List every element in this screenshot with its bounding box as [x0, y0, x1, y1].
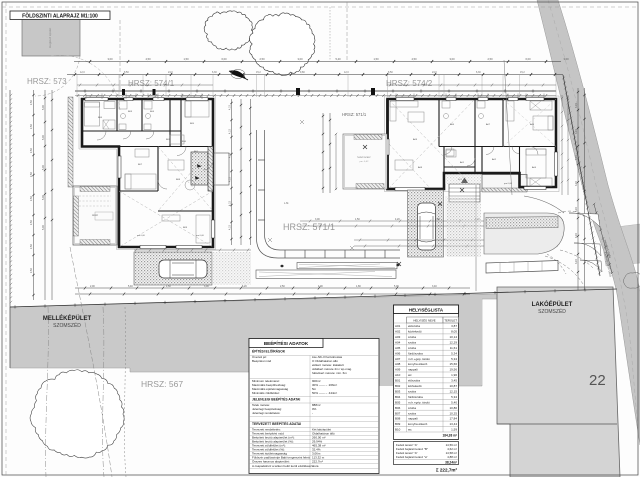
svg-text:A csapadékvíz a telken belül k: A csapadékvíz a telken belül kerül elszi…: [252, 464, 319, 468]
svg-text:szoba: szoba: [408, 335, 416, 339]
svg-text:A04: A04: [395, 340, 401, 344]
svg-text:6,30: 6,30: [212, 71, 217, 74]
svg-text:HELYISÉGLISTA: HELYISÉGLISTA: [409, 307, 444, 312]
svg-text:m.h.+gép. tároló: m.h.+gép. tároló: [408, 357, 430, 361]
svg-text:A08: A08: [395, 362, 401, 366]
svg-text:11,61: 11,61: [450, 346, 458, 350]
svg-text:Jelenlegi rendeltetés:: Jelenlegi rendeltetés:: [252, 411, 281, 415]
svg-text:konyha étkező: konyha étkező: [408, 422, 428, 426]
svg-text:5,00: 5,00: [394, 285, 399, 288]
svg-text:SZOMSZÉD: SZOMSZÉD: [538, 308, 566, 315]
svg-text:5,34: 5,34: [451, 351, 457, 355]
svg-text:3,00: 3,00: [315, 218, 320, 221]
svg-text:közlekedő: közlekedő: [408, 384, 422, 388]
svg-text:4,10: 4,10: [229, 153, 232, 158]
svg-text:3,20: 3,20: [575, 103, 578, 108]
svg-text:15,2: 15,2: [256, 71, 261, 74]
svg-text:3,87: 3,87: [451, 324, 457, 328]
svg-text:5,40: 5,40: [128, 285, 133, 288]
svg-text:TERVEZETT BEÉPÍTÉS ADATAI: TERVEZETT BEÉPÍTÉS ADATAI: [252, 421, 301, 426]
svg-text:6,20: 6,20: [242, 285, 247, 288]
svg-text:B07: B07: [395, 411, 401, 415]
svg-text:A01: A01: [395, 324, 401, 328]
svg-text:Fedett bejárati terasz "a": Fedett bejárati terasz "a": [396, 455, 428, 459]
svg-text:fedett terasz: fedett terasz: [357, 156, 371, 159]
svg-text:pm -0,02: pm -0,02: [360, 161, 369, 163]
svg-text:B01: B01: [395, 379, 401, 383]
svg-text:1,50: 1,50: [166, 285, 171, 288]
svg-text:17,84: 17,84: [449, 417, 457, 421]
svg-text:szoba: szoba: [408, 340, 416, 344]
svg-text:4,10: 4,10: [229, 177, 232, 182]
svg-text:MELLÉKÉPÜLET: MELLÉKÉPÜLET: [43, 314, 92, 322]
svg-text:m.h.+gép. tároló: m.h.+gép. tároló: [408, 400, 430, 404]
svg-text:3,20: 3,20: [575, 259, 578, 264]
svg-text:4,10: 4,10: [229, 225, 232, 230]
svg-text:B10: B10: [395, 428, 401, 432]
svg-text:4,00: 4,00: [318, 285, 323, 288]
svg-text:B09: B09: [395, 422, 401, 426]
svg-text:A03: A03: [395, 335, 401, 339]
svg-text:HRSZ: 571/1: HRSZ: 571/1: [342, 112, 367, 117]
svg-text:B06: B06: [395, 406, 401, 410]
svg-text:előszoba: előszoba: [408, 324, 420, 328]
svg-text:8,05: 8,05: [451, 330, 457, 334]
svg-text:A05: A05: [395, 346, 401, 350]
svg-text:50% ——→ 444m²: 50% ——→ 444m²: [312, 391, 337, 395]
svg-text:szoba: szoba: [408, 346, 416, 350]
svg-text:pm 0,00: pm 0,00: [196, 235, 205, 237]
svg-text:1,96: 1,96: [451, 373, 457, 377]
svg-text:2,50: 2,50: [259, 57, 265, 61]
svg-text:5,34: 5,34: [451, 357, 457, 361]
svg-text:2,00: 2,00: [90, 285, 95, 288]
svg-text:3,00: 3,00: [204, 285, 209, 288]
svg-text:A02: A02: [395, 330, 401, 334]
svg-text:19,56: 19,56: [449, 368, 457, 372]
svg-text:A06: A06: [395, 351, 401, 355]
svg-text:5,00: 5,00: [42, 165, 45, 170]
svg-text:L.M.: L.M.: [284, 201, 289, 205]
svg-text:15,2: 15,2: [520, 71, 525, 74]
svg-text:2,50: 2,50: [30, 196, 33, 201]
svg-text:12,0: 12,0: [344, 71, 349, 74]
svg-text:Beépítési mód: Beépítési mód: [252, 359, 272, 363]
svg-text:3,00: 3,00: [297, 57, 303, 61]
svg-text:HRSZ: 573: HRSZ: 573: [27, 77, 67, 86]
svg-text:222,7m²: 222,7m²: [312, 460, 323, 464]
svg-text:4,10: 4,10: [229, 201, 232, 206]
svg-text:B08: B08: [395, 417, 401, 421]
svg-text:8,50: 8,50: [388, 71, 393, 74]
svg-text:22: 22: [589, 372, 606, 389]
svg-text:A10: A10: [395, 373, 401, 377]
svg-text:FÖLDSZINTI ALAPRAJZ M1:100: FÖLDSZINTI ALAPRAJZ M1:100: [22, 12, 98, 19]
svg-text:szoba: szoba: [408, 406, 416, 410]
svg-text:fürdőszoba: fürdőszoba: [408, 351, 423, 355]
svg-text:3,20: 3,20: [575, 207, 578, 212]
svg-text:-: -: [312, 411, 313, 415]
svg-text:konyha étkező: konyha étkező: [408, 362, 428, 366]
svg-text:Összes hasznos alapterület:: Összes hasznos alapterület:: [252, 460, 290, 464]
svg-text:3,40: 3,40: [432, 285, 437, 288]
svg-text:9,80: 9,80: [300, 71, 305, 74]
svg-text:ÉPÍTÉSI ELŐÍRÁSOK: ÉPÍTÉSI ELŐÍRÁSOK: [252, 349, 286, 354]
svg-text:2,80: 2,80: [435, 218, 440, 221]
svg-text:B05: B05: [395, 400, 401, 404]
svg-text:4,88 m²: 4,88 m²: [447, 455, 457, 459]
svg-text:24,0: 24,0: [168, 71, 173, 74]
svg-text:5,34: 5,34: [451, 395, 457, 399]
svg-text:2,50: 2,50: [30, 220, 33, 225]
svg-text:2,50: 2,50: [30, 244, 33, 249]
svg-text:közlekedő: közlekedő: [408, 330, 422, 334]
svg-text:SZOMSZÉD: SZOMSZÉD: [53, 322, 81, 329]
svg-text:3,20: 3,20: [575, 233, 578, 238]
svg-text:10,87: 10,87: [449, 384, 457, 388]
svg-text:3,20: 3,20: [575, 181, 578, 186]
svg-text:A07: A07: [395, 357, 401, 361]
svg-text:3,20: 3,20: [575, 155, 578, 160]
svg-text:2,50: 2,50: [487, 57, 493, 61]
svg-text:pm 0,00: pm 0,00: [504, 183, 513, 185]
svg-text:1,80: 1,80: [356, 285, 361, 288]
svg-text:Σ 222,7m²: Σ 222,7m²: [436, 468, 458, 473]
svg-text:3,00: 3,00: [449, 57, 455, 61]
svg-text:HELYISÉG NEVE: HELYISÉG NEVE: [413, 318, 435, 323]
svg-text:A09: A09: [395, 368, 401, 372]
svg-text:5,40: 5,40: [451, 400, 457, 404]
svg-text:tároló: tároló: [92, 214, 99, 217]
svg-text:JELENLEGI BEÉPÍTÉS ADATAI: JELENLEGI BEÉPÍTÉS ADATAI: [252, 397, 300, 402]
svg-text:4,50: 4,50: [145, 57, 151, 61]
svg-text:6,30: 6,30: [476, 71, 481, 74]
svg-text:Minimális zöldfelület:: Minimális zöldfelület:: [252, 391, 280, 395]
svg-text:184,38 m²: 184,38 m²: [442, 434, 457, 438]
svg-text:HRSZ: 571/1: HRSZ: 571/1: [283, 222, 335, 232]
svg-text:6,00: 6,00: [221, 57, 227, 61]
svg-text:B04: B04: [395, 395, 401, 399]
svg-text:wc: wc: [408, 373, 412, 377]
svg-text:10,14: 10,14: [449, 335, 457, 339]
svg-text:2,50: 2,50: [30, 124, 33, 129]
svg-text:2,50: 2,50: [30, 148, 33, 153]
svg-text:3,00: 3,00: [107, 57, 113, 61]
svg-text:5,00: 5,00: [42, 195, 45, 200]
svg-text:3,45: 3,45: [451, 379, 457, 383]
svg-text:38,24m²: 38,24m²: [445, 461, 457, 465]
svg-text:2,50: 2,50: [30, 268, 33, 273]
svg-text:5,00: 5,00: [42, 135, 45, 140]
svg-text:B03: B03: [395, 390, 401, 394]
svg-text:fürdőszoba: fürdőszoba: [408, 395, 423, 399]
svg-text:pm 0,00: pm 0,00: [137, 235, 146, 237]
svg-text:1,59: 1,59: [451, 428, 457, 432]
svg-text:12,0: 12,0: [80, 71, 85, 74]
svg-text:10,25: 10,25: [449, 411, 457, 415]
svg-text:előszoba: előszoba: [408, 379, 420, 383]
svg-text:1,50: 1,50: [355, 218, 360, 221]
svg-text:TERÜLET: TERÜLET: [444, 319, 457, 323]
svg-text:wc: wc: [408, 428, 412, 432]
svg-text:3,20: 3,20: [575, 129, 578, 134]
svg-text:5,40: 5,40: [335, 57, 341, 61]
svg-text:13,44: 13,44: [449, 422, 457, 426]
svg-text:5,00: 5,00: [42, 225, 45, 230]
svg-text:meglévő épület: meglévő épület: [48, 28, 52, 49]
svg-text:HRSZ: 567: HRSZ: 567: [141, 379, 183, 389]
svg-text:3,00: 3,00: [563, 57, 569, 61]
svg-text:10,80: 10,80: [449, 406, 457, 410]
svg-text:24,0: 24,0: [432, 71, 437, 74]
svg-text:HRSZ: 574/1: HRSZ: 574/1: [128, 79, 175, 88]
svg-text:1,50: 1,50: [373, 57, 379, 61]
svg-text:szoba: szoba: [408, 390, 416, 394]
svg-text:12,29: 12,29: [449, 340, 457, 344]
svg-text:BEÉPÍTÉSI ADATOK: BEÉPÍTÉSI ADATOK: [264, 339, 309, 346]
svg-text:hátsókert mérete: min. 6m: hátsókert mérete: min. 6m: [312, 371, 347, 375]
svg-text:LAKÓÉPÜLET: LAKÓÉPÜLET: [532, 300, 573, 308]
svg-text:2,50: 2,50: [30, 100, 33, 105]
svg-text:szoba: szoba: [408, 411, 416, 415]
svg-text:5,00: 5,00: [42, 105, 45, 110]
svg-text:HRSZ: 574/2: HRSZ: 574/2: [386, 79, 433, 88]
svg-text:2,50: 2,50: [280, 285, 285, 288]
svg-text:nappali: nappali: [408, 417, 418, 421]
svg-text:6,00: 6,00: [525, 57, 531, 61]
svg-text:12,15: 12,15: [449, 390, 457, 394]
svg-text:nappali: nappali: [408, 368, 418, 372]
svg-text:4,10: 4,10: [229, 129, 232, 134]
svg-text:2,50: 2,50: [30, 172, 33, 177]
svg-text:B02: B02: [395, 384, 401, 388]
svg-text:4,20: 4,20: [395, 218, 400, 221]
svg-text:8,50: 8,50: [124, 71, 129, 74]
svg-text:1,50: 1,50: [183, 57, 189, 61]
svg-text:4,10: 4,10: [229, 105, 232, 110]
svg-text:4,50: 4,50: [411, 57, 417, 61]
svg-text:15,66: 15,66: [449, 362, 457, 366]
